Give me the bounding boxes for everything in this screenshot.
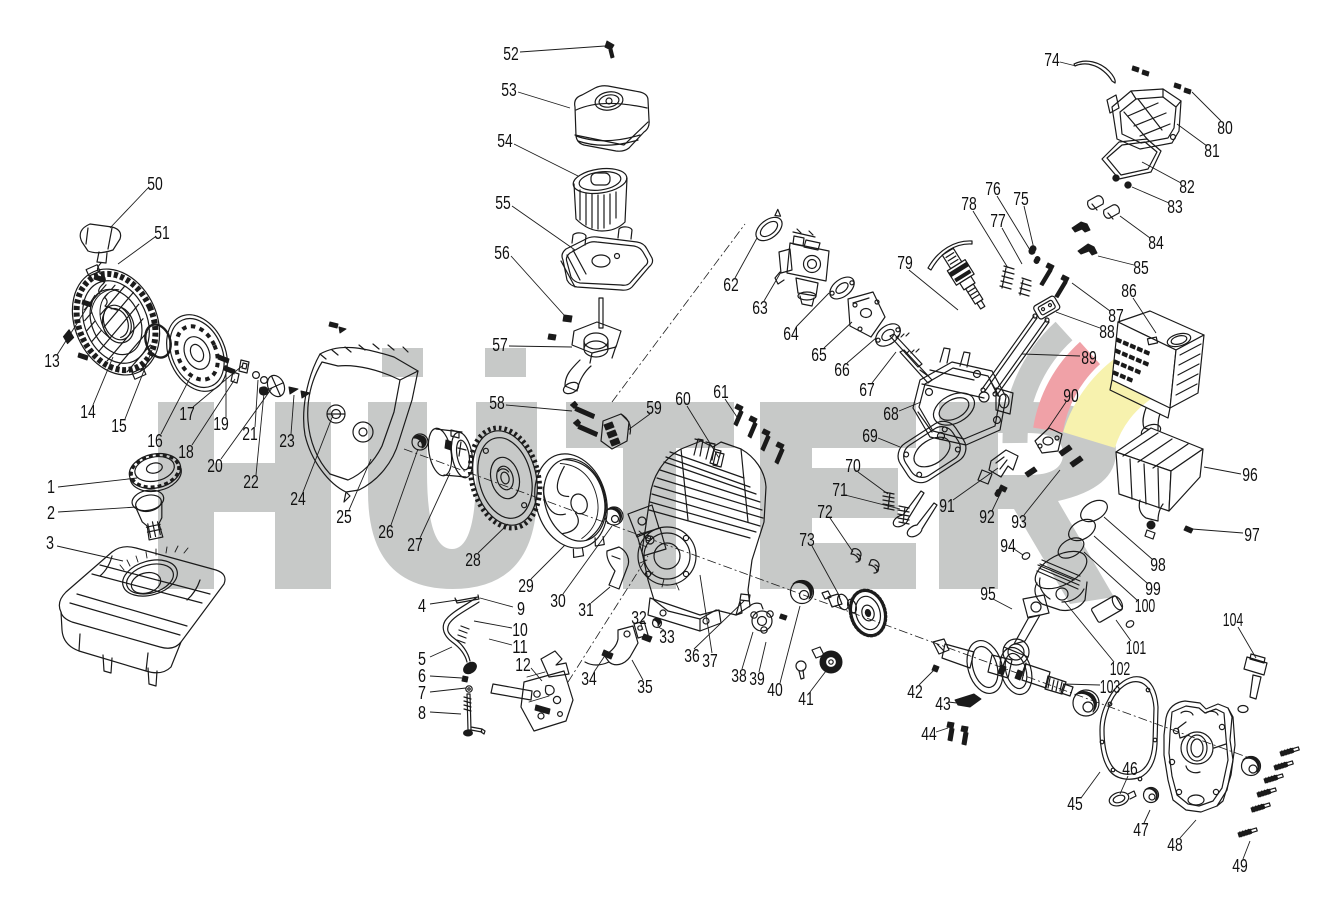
svg-text:35: 35	[637, 677, 653, 697]
svg-text:42: 42	[907, 682, 923, 702]
svg-text:47: 47	[1133, 820, 1149, 840]
svg-text:45: 45	[1067, 794, 1083, 814]
svg-text:26: 26	[378, 522, 394, 542]
svg-text:101: 101	[1126, 638, 1147, 658]
svg-text:2: 2	[47, 503, 55, 523]
svg-text:69: 69	[862, 426, 878, 446]
svg-text:19: 19	[213, 414, 229, 434]
svg-text:41: 41	[798, 689, 814, 709]
svg-text:60: 60	[675, 389, 691, 409]
svg-text:67: 67	[859, 380, 875, 400]
svg-text:50: 50	[147, 174, 163, 194]
svg-text:9: 9	[517, 599, 525, 619]
svg-text:31: 31	[578, 600, 594, 620]
svg-text:25: 25	[336, 507, 352, 527]
svg-text:77: 77	[990, 211, 1006, 231]
svg-text:72: 72	[817, 502, 833, 522]
svg-text:28: 28	[465, 550, 481, 570]
svg-text:94: 94	[1000, 536, 1016, 556]
svg-text:33: 33	[659, 627, 675, 647]
svg-text:15: 15	[111, 416, 127, 436]
svg-text:34: 34	[581, 669, 597, 689]
svg-text:18: 18	[178, 442, 194, 462]
svg-text:66: 66	[834, 360, 850, 380]
svg-text:92: 92	[979, 507, 995, 527]
svg-text:81: 81	[1204, 141, 1220, 161]
svg-text:39: 39	[749, 669, 765, 689]
svg-text:61: 61	[713, 382, 729, 402]
svg-text:71: 71	[832, 480, 848, 500]
svg-text:4: 4	[418, 596, 426, 616]
svg-text:88: 88	[1099, 322, 1115, 342]
svg-text:16: 16	[147, 431, 163, 451]
svg-text:76: 76	[985, 179, 1001, 199]
svg-text:20: 20	[207, 456, 223, 476]
svg-text:93: 93	[1011, 512, 1027, 532]
svg-text:17: 17	[179, 404, 195, 424]
svg-text:27: 27	[407, 535, 423, 555]
svg-text:29: 29	[518, 576, 534, 596]
svg-text:14: 14	[80, 402, 96, 422]
svg-text:51: 51	[154, 223, 170, 243]
svg-text:59: 59	[646, 398, 662, 418]
svg-text:32: 32	[631, 608, 647, 628]
svg-text:43: 43	[935, 694, 951, 714]
svg-text:21: 21	[242, 424, 258, 444]
svg-text:97: 97	[1244, 525, 1260, 545]
svg-text:79: 79	[897, 253, 913, 273]
svg-text:44: 44	[921, 724, 937, 744]
svg-text:7: 7	[418, 683, 426, 703]
svg-text:91: 91	[939, 496, 955, 516]
svg-text:23: 23	[279, 431, 295, 451]
svg-text:52: 52	[503, 44, 519, 64]
svg-text:83: 83	[1167, 197, 1183, 217]
svg-text:58: 58	[489, 393, 505, 413]
svg-text:73: 73	[799, 530, 815, 550]
svg-text:75: 75	[1013, 189, 1029, 209]
svg-text:11: 11	[512, 637, 528, 657]
svg-text:12: 12	[515, 655, 531, 675]
svg-text:8: 8	[418, 703, 426, 723]
svg-text:104: 104	[1223, 610, 1244, 630]
svg-text:65: 65	[811, 345, 827, 365]
svg-text:53: 53	[501, 80, 517, 100]
svg-text:3: 3	[46, 533, 54, 553]
svg-text:82: 82	[1179, 177, 1195, 197]
svg-text:36: 36	[684, 646, 700, 666]
svg-text:70: 70	[845, 456, 861, 476]
svg-text:74: 74	[1044, 50, 1060, 70]
svg-text:38: 38	[731, 666, 747, 686]
svg-text:103: 103	[1100, 677, 1121, 697]
svg-text:54: 54	[497, 131, 513, 151]
svg-text:90: 90	[1063, 386, 1079, 406]
svg-text:80: 80	[1217, 118, 1233, 138]
svg-text:85: 85	[1133, 258, 1149, 278]
svg-text:49: 49	[1232, 856, 1248, 876]
svg-text:30: 30	[550, 591, 566, 611]
svg-text:64: 64	[783, 324, 799, 344]
svg-text:48: 48	[1167, 835, 1183, 855]
svg-text:100: 100	[1135, 596, 1156, 616]
svg-text:46: 46	[1122, 759, 1138, 779]
svg-text:95: 95	[980, 584, 996, 604]
svg-text:102: 102	[1110, 659, 1131, 679]
svg-text:78: 78	[961, 194, 977, 214]
svg-text:57: 57	[492, 335, 508, 355]
svg-text:86: 86	[1121, 281, 1137, 301]
svg-text:40: 40	[767, 680, 783, 700]
svg-text:98: 98	[1150, 555, 1166, 575]
svg-text:24: 24	[290, 489, 306, 509]
svg-text:55: 55	[495, 193, 511, 213]
svg-text:62: 62	[723, 275, 739, 295]
svg-text:89: 89	[1081, 348, 1097, 368]
svg-text:1: 1	[47, 477, 55, 497]
svg-text:56: 56	[494, 243, 510, 263]
svg-text:96: 96	[1242, 465, 1258, 485]
svg-text:22: 22	[243, 472, 259, 492]
svg-text:68: 68	[883, 404, 899, 424]
svg-text:13: 13	[44, 351, 60, 371]
svg-text:63: 63	[752, 298, 768, 318]
svg-text:37: 37	[702, 651, 718, 671]
svg-text:84: 84	[1148, 233, 1164, 253]
